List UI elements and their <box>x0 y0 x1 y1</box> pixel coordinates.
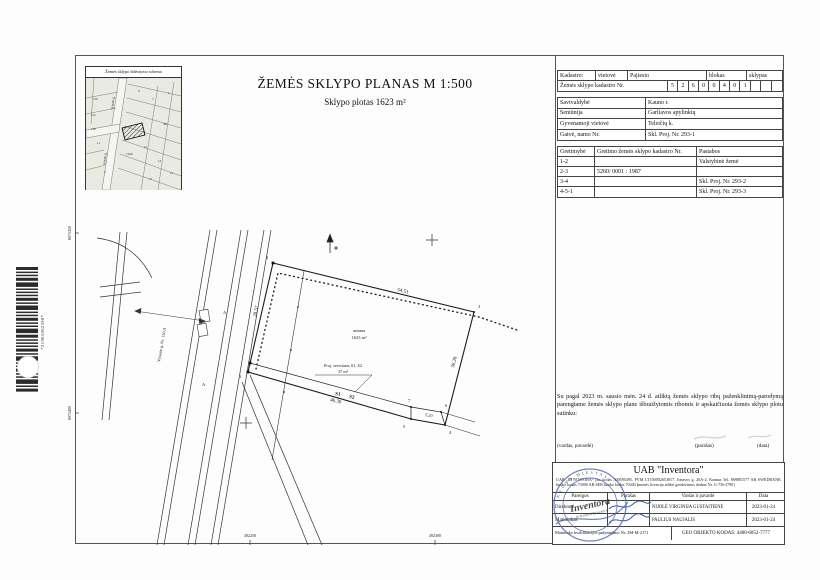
cadastre-digit: 4 <box>720 81 730 91</box>
drawing-label: S1 <box>335 392 341 398</box>
drawing-label: 7 <box>408 398 411 403</box>
cadastre-digit: 0 <box>730 81 740 91</box>
signer-date: 2023-01-24 <box>747 514 780 526</box>
hole-punch <box>18 357 39 378</box>
adjacency-note <box>697 167 782 176</box>
barcode-text: *21965062598* <box>40 314 45 349</box>
drawing-label: 6075450 <box>67 226 72 240</box>
cadastre-area-value: Pajiesio <box>628 71 707 80</box>
grid-ticks <box>75 233 435 545</box>
drawing-label: A <box>202 382 206 387</box>
adjacency-note: Valstybinė žemė <box>697 157 782 166</box>
signer-name: NIJOLĖ VIRGINIJA GUSTAITIENĖ <box>650 501 747 513</box>
drawing-label: ariama <box>353 328 365 333</box>
adjacency-id: 1-2 <box>558 157 595 166</box>
row-label: Seniūnija <box>558 109 646 119</box>
col-header: Pastabos <box>697 147 782 156</box>
cadastre-label: Kadastro: <box>558 71 596 80</box>
drawing-label: 492300 <box>429 533 441 538</box>
signer-date: 2023-01-24 <box>747 501 780 513</box>
svg-text:KAUNO MIESTAS: KAUNO MIESTAS <box>555 470 610 498</box>
cadastre-block-label: blokas <box>707 71 747 80</box>
drawing-label: 1 <box>239 374 241 379</box>
drawing-label: 5 <box>403 424 406 429</box>
signature-smudge <box>690 430 775 444</box>
row-value: Skl. Proj. Nr. 293-1 <box>646 130 782 141</box>
drawing-label: S2 <box>349 395 355 401</box>
drawing-label: Vytauto g. Nr. 150 A <box>156 327 167 362</box>
drawing-label: 6075400 <box>67 406 72 420</box>
plot-drawing: 54.5328.5730.2846.305.20ariama1623 m²Pro… <box>60 55 555 545</box>
cadastre-digit: 5 <box>668 81 678 91</box>
drawing-labels: 54.5328.5730.2846.305.20ariama1623 m²Pro… <box>67 226 481 538</box>
signer-name: PAULIUS NAUJALIS <box>650 514 747 526</box>
geo-object-code: GEO OBJEKTO KODAS: 4400-6052-7777 <box>672 527 780 540</box>
servitude-leader <box>315 375 372 392</box>
cadastre-digit-empty <box>761 81 771 91</box>
company-stamp: KAUNO MIESTAS Inventora DOKUMENTŲ KOPIJA <box>544 464 636 548</box>
col-header-date: Data <box>747 493 780 500</box>
road-structures <box>197 309 210 336</box>
consent-paragraph: Su pagal 2023 m. sausio mėn. 24 d. atlik… <box>557 393 783 418</box>
drawing-label: 46.30 <box>330 398 343 406</box>
row-value: Kauno r. <box>646 98 782 108</box>
row-label: Gyvenamoji vietovė <box>558 119 646 129</box>
drawing-label: 5.20 <box>425 412 433 418</box>
row-label: Gatvė, namo Nr. <box>558 130 646 141</box>
traverse-line <box>272 271 304 460</box>
cadastre-digit: 2 <box>678 81 688 91</box>
north-arrow-icon <box>327 235 337 254</box>
cadastre-digit: 1 <box>740 81 750 91</box>
stamp-arc-text: KAUNO MIESTAS <box>555 470 610 498</box>
adjacency-cad: 5260/ 0001 : 1987 <box>595 167 697 176</box>
row-label: Savivaldybė <box>558 98 646 108</box>
cadastre-number-label: Žemės sklypo kadastro Nr. <box>558 81 668 91</box>
row-value: Garliavos apylinkių <box>646 109 782 119</box>
adjacency-cad <box>595 177 697 186</box>
adjacency-table: Gretimybė Gretimo žemės sklypo kadastro … <box>557 146 783 198</box>
name-label: (vardas, pavardė) <box>557 443 593 449</box>
cadastre-table: Kadastro: vietovė Pajiesio blokas sklypa… <box>557 70 783 92</box>
drawing-label: 492250 <box>244 533 256 538</box>
barcode: *21965062598* <box>14 263 52 401</box>
drawing-label: 2 <box>266 255 268 260</box>
drawing-label: 6 <box>445 403 448 408</box>
cadastre-digit: 6 <box>689 81 699 91</box>
cadastre-digit-empty <box>751 81 761 91</box>
adjacency-id: 2-3 <box>558 167 595 176</box>
cadastre-digit-empty <box>772 81 782 91</box>
cadastre-digit: 0 <box>709 81 719 91</box>
vertex-markers <box>247 262 475 426</box>
drawing-label: A <box>223 310 227 315</box>
adjacency-cad <box>595 187 697 197</box>
cadastre-area-label: vietovė <box>596 71 628 80</box>
col-header-name: Vardas ir pavardė <box>650 493 747 500</box>
adjacency-note: Skl. Proj. Nr. 293-2 <box>697 177 782 186</box>
drawing-label: 30.28 <box>451 356 459 369</box>
adjacency-id: 4-5-1 <box>558 187 595 197</box>
drawing-label: 28.57 <box>253 305 261 318</box>
drawing-label: 37 m² <box>338 369 349 374</box>
drawing-label: 1623 m² <box>352 335 368 340</box>
adjacency-id: 3-4 <box>558 177 595 186</box>
drawing-label: 4 <box>449 430 452 435</box>
location-table: Savivaldybė Kauno r. Seniūnija Garliavos… <box>557 97 783 141</box>
col-header: Gretimo žemės sklypo kadastro Nr. <box>595 147 697 156</box>
cadastre-parcel-label: sklypas <box>747 71 782 80</box>
adjacency-cad <box>595 157 697 166</box>
adjacency-note: Skl. Proj. Nr. 293-3 <box>697 187 782 197</box>
row-value: Teleičių k. <box>646 119 782 129</box>
roads <box>97 230 322 545</box>
cadastre-digit: 0 <box>699 81 709 91</box>
col-header: Gretimybė <box>558 147 595 156</box>
drawing-label: 3 <box>478 304 481 309</box>
